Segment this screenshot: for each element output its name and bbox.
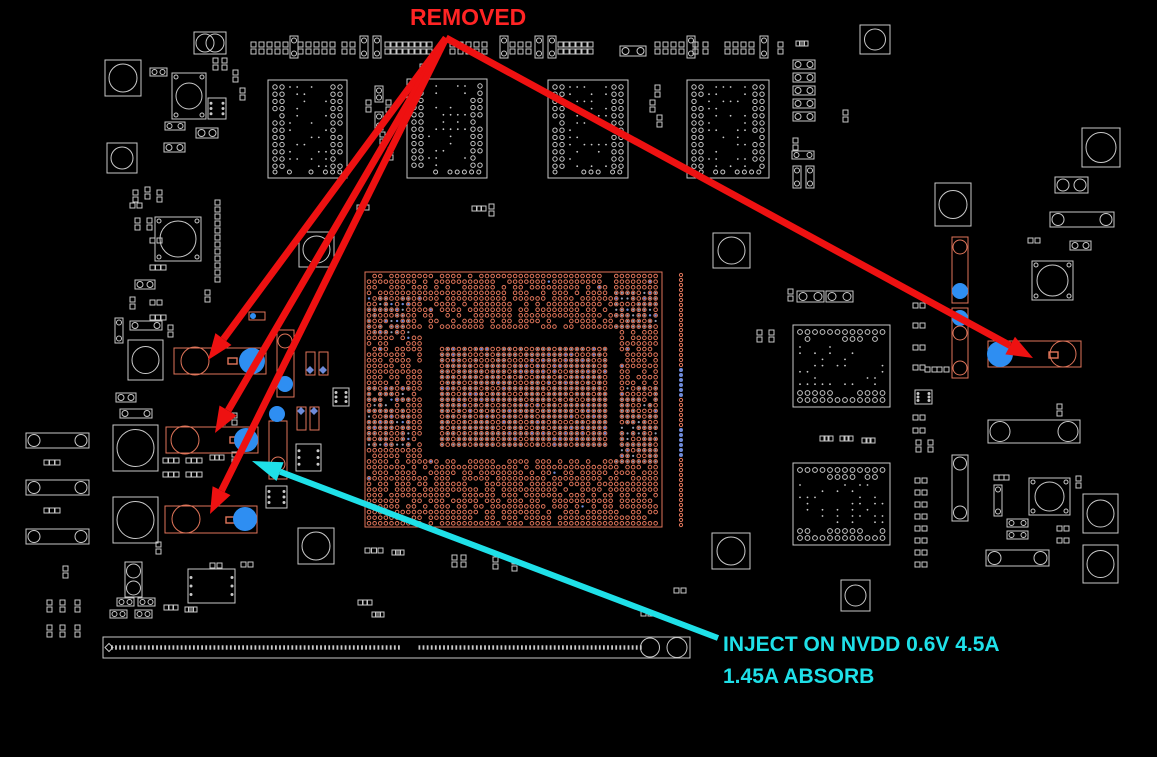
cyan-arrow bbox=[252, 461, 718, 638]
removed-label: REMOVED bbox=[410, 4, 526, 31]
pad-strip bbox=[679, 273, 683, 526]
inject-annotation: INJECT ON NVDD 0.6V 4.5A 1.45A ABSORB bbox=[723, 629, 1000, 693]
pcb-components bbox=[26, 25, 1120, 658]
bga-chip bbox=[365, 272, 662, 527]
boardview-canvas: REMOVED INJECT ON NVDD 0.6V 4.5A 1.45A A… bbox=[0, 0, 1157, 757]
inject-line2: 1.45A ABSORB bbox=[723, 661, 1000, 693]
inject-line1: INJECT ON NVDD 0.6V 4.5A bbox=[723, 629, 1000, 661]
